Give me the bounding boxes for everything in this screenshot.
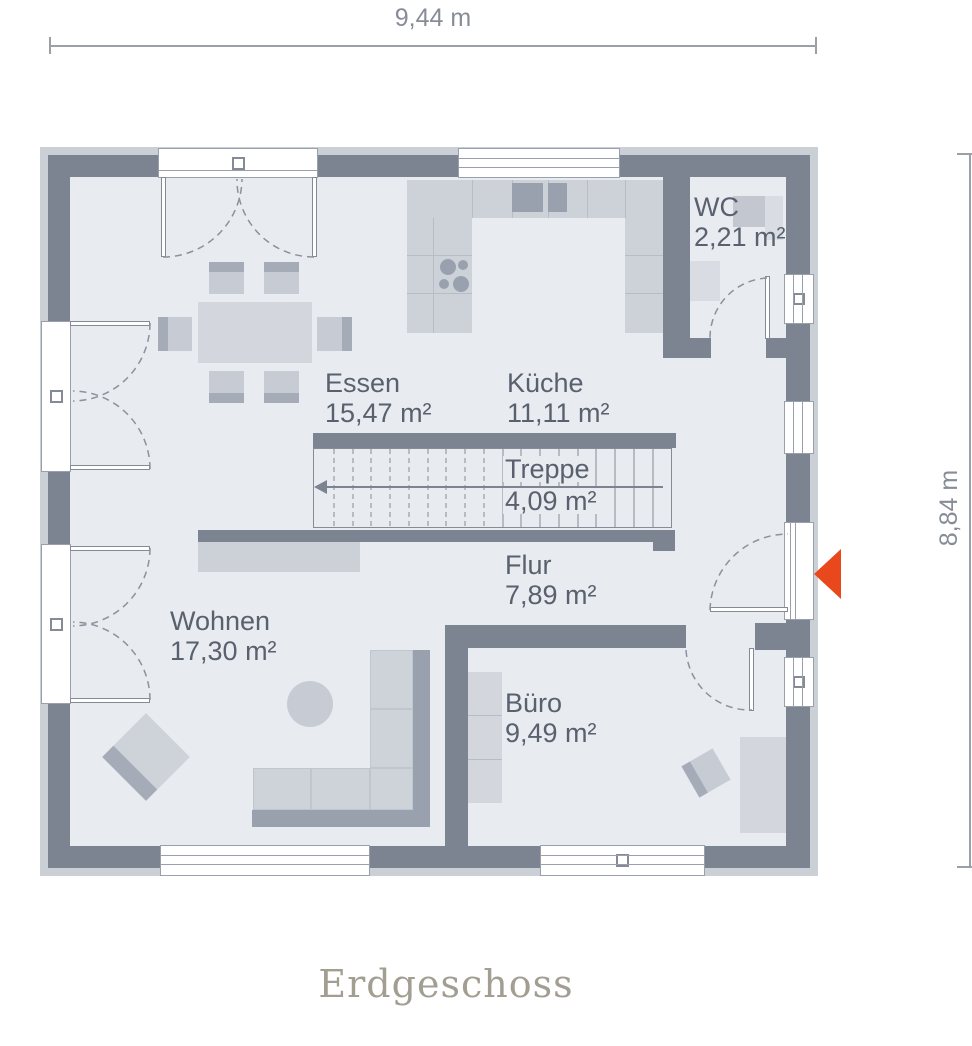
hall-sideboard bbox=[198, 542, 360, 572]
width-dimension-line bbox=[50, 45, 817, 47]
stair-direction-arrow-line bbox=[326, 486, 663, 488]
dining-chair bbox=[264, 371, 299, 403]
room-name: Büro bbox=[505, 688, 597, 718]
width-dimension-tick-left bbox=[49, 37, 51, 54]
height-dimension-tick-top bbox=[957, 153, 972, 155]
entrance-arrow-icon bbox=[814, 549, 841, 599]
dining-chair bbox=[209, 262, 244, 294]
wc-window bbox=[784, 274, 814, 324]
room-label-hall: Flur 7,89 m² bbox=[505, 550, 597, 610]
room-area: 15,47 m² bbox=[325, 398, 432, 428]
window-glass-line bbox=[459, 158, 619, 159]
sofa-backrest-bottom bbox=[252, 810, 430, 827]
cooktop-burner bbox=[439, 279, 449, 289]
chair-backrest bbox=[342, 317, 352, 351]
window-symbol bbox=[793, 293, 805, 305]
wc-door-swing-arc bbox=[703, 272, 775, 344]
sofa-backrest-right bbox=[413, 650, 430, 827]
counter-divider bbox=[625, 180, 626, 218]
height-dimension-label: 8,84 m bbox=[935, 443, 963, 573]
counter-divider bbox=[625, 255, 663, 256]
door-frame-line bbox=[795, 523, 796, 619]
window-glass-line bbox=[793, 402, 794, 453]
kitchen-counter-right-run bbox=[625, 218, 663, 333]
floor-plan-canvas: 9,44 m 8,84 m bbox=[0, 0, 972, 1046]
floor-title: Erdgeschoss bbox=[246, 962, 646, 1008]
room-label-kitchen: Küche 11,11 m² bbox=[507, 368, 610, 428]
dining-terrace-door-window bbox=[158, 148, 318, 178]
coffee-table bbox=[287, 681, 333, 727]
dining-french-door bbox=[41, 321, 71, 472]
height-dimension-tick-bottom bbox=[957, 866, 972, 868]
room-label-office: Büro 9,49 m² bbox=[505, 688, 597, 748]
room-label-stairs: Treppe 4,09 m² bbox=[503, 456, 599, 514]
office-wall-top bbox=[445, 625, 686, 648]
hall-window bbox=[784, 401, 814, 454]
office-door-swing-arc bbox=[678, 644, 756, 716]
kitchen-window bbox=[458, 148, 620, 178]
dining-chair bbox=[158, 317, 192, 351]
window-frame-line bbox=[159, 170, 317, 171]
living-office-wall bbox=[445, 625, 468, 846]
sofa-cushion-corner bbox=[370, 768, 413, 810]
dining-table bbox=[198, 302, 312, 363]
chair-backrest bbox=[264, 262, 299, 272]
window-glass-line bbox=[802, 658, 803, 706]
window-glass-line bbox=[802, 275, 803, 323]
sofa-cushion bbox=[370, 650, 413, 709]
counter-divider bbox=[407, 255, 472, 256]
counter-divider bbox=[625, 293, 663, 294]
room-label-wc: WC 2,21 m² bbox=[694, 192, 786, 252]
wc-partition-wall-left bbox=[663, 177, 690, 358]
room-area: 17,30 m² bbox=[170, 636, 277, 666]
chair-backrest bbox=[158, 317, 168, 351]
width-dimension-tick-right bbox=[815, 37, 817, 54]
cooktop-burner bbox=[453, 276, 469, 292]
office-wall-top-right-stub bbox=[755, 623, 786, 650]
chair-backrest bbox=[264, 393, 299, 403]
window-glass-line bbox=[541, 864, 704, 865]
width-dimension-label: 9,44 m bbox=[333, 4, 533, 36]
kitchen-sink-small bbox=[548, 183, 567, 212]
stair-direction-arrowhead bbox=[314, 480, 327, 494]
window-symbol bbox=[232, 157, 245, 170]
kitchen-sink bbox=[512, 183, 543, 212]
window-glass-line bbox=[459, 167, 619, 168]
height-dimension-line bbox=[969, 154, 971, 867]
dining-chair bbox=[264, 262, 299, 294]
shelf-divider bbox=[468, 759, 502, 760]
cooktop-burner bbox=[458, 260, 468, 270]
living-bottom-window bbox=[160, 845, 370, 876]
sofa-cushion bbox=[311, 768, 370, 810]
window-symbol bbox=[793, 676, 805, 688]
window-glass-line bbox=[541, 855, 704, 856]
dining-chair bbox=[209, 371, 244, 403]
counter-divider bbox=[472, 180, 473, 218]
room-name: Wohnen bbox=[170, 606, 277, 636]
counter-divider bbox=[407, 293, 472, 294]
dining-french-door-swing-arc bbox=[70, 321, 154, 473]
cooktop-burner bbox=[440, 259, 456, 275]
counter-divider bbox=[587, 180, 588, 218]
sofa-cushion bbox=[253, 768, 311, 810]
window-symbol bbox=[50, 618, 63, 631]
stair-treads bbox=[334, 449, 653, 527]
room-name: Küche bbox=[507, 368, 610, 398]
dining-chair bbox=[317, 317, 352, 351]
office-side-window bbox=[784, 657, 814, 707]
dining-terrace-door-swing-arc bbox=[158, 176, 320, 262]
stair-railing bbox=[198, 530, 675, 542]
stair-top-wall bbox=[313, 433, 676, 448]
living-french-door bbox=[41, 544, 71, 704]
window-glass-line bbox=[161, 864, 369, 865]
chair-backrest bbox=[209, 262, 244, 272]
room-name: Flur bbox=[505, 550, 597, 580]
office-shelf bbox=[468, 672, 502, 803]
room-name: Essen bbox=[325, 368, 432, 398]
counter-divider bbox=[433, 218, 434, 333]
office-desk bbox=[740, 737, 786, 833]
room-label-living: Wohnen 17,30 m² bbox=[170, 606, 277, 666]
room-area: 2,21 m² bbox=[694, 222, 786, 252]
entrance-door-swing-arc bbox=[703, 528, 791, 616]
room-area: 11,11 m² bbox=[507, 398, 610, 428]
room-name: Treppe bbox=[503, 456, 592, 482]
room-area: 9,49 m² bbox=[505, 718, 597, 748]
stair-railing-end bbox=[653, 542, 675, 551]
office-bottom-window bbox=[540, 845, 705, 876]
room-area: 4,09 m² bbox=[503, 488, 599, 514]
window-glass-line bbox=[793, 275, 794, 323]
window-glass-line bbox=[802, 402, 803, 453]
shelf-divider bbox=[468, 715, 502, 716]
staircase bbox=[313, 448, 672, 528]
window-glass-line bbox=[161, 855, 369, 856]
room-label-dining: Essen 15,47 m² bbox=[325, 368, 432, 428]
sofa-cushion bbox=[370, 709, 413, 768]
room-name: WC bbox=[694, 192, 786, 222]
room-area: 7,89 m² bbox=[505, 580, 597, 610]
window-glass-line bbox=[793, 658, 794, 706]
window-symbol bbox=[50, 390, 63, 403]
chair-backrest bbox=[209, 393, 244, 403]
living-french-door-swing-arc bbox=[70, 544, 154, 706]
